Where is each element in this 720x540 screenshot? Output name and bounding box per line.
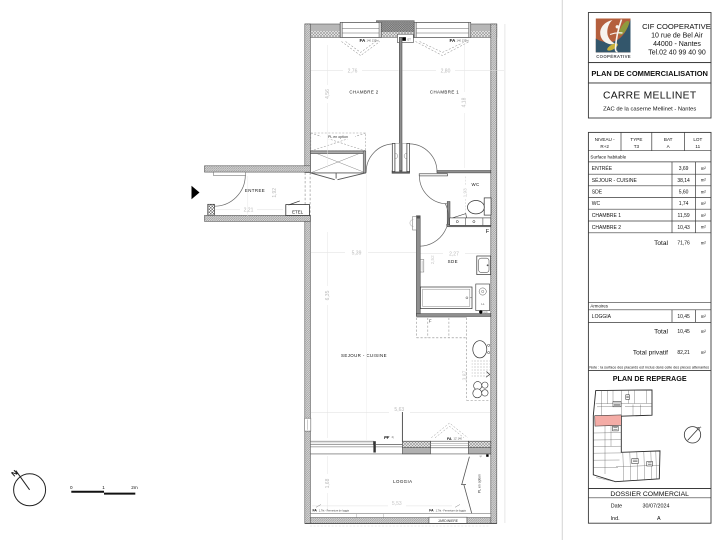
svg-text:2,27: 2,27	[449, 251, 459, 257]
svg-text:Date: Date	[611, 504, 622, 510]
svg-text:PLAN DE REPERAGE: PLAN DE REPERAGE	[613, 374, 687, 383]
svg-text:3,69: 3,69	[679, 166, 689, 172]
svg-text:m²: m²	[701, 201, 707, 206]
svg-text:12' 140: 12' 140	[454, 437, 463, 441]
svg-text:10,43: 10,43	[677, 225, 690, 231]
svg-text:10,45: 10,45	[677, 314, 690, 320]
svg-text:1,7ht - Fermeture de loggia: 1,7ht - Fermeture de loggia	[436, 510, 467, 513]
svg-text:ETEL: ETEL	[292, 210, 304, 215]
svg-text:FA: FA	[429, 509, 434, 513]
svg-text:m²: m²	[701, 166, 707, 171]
svg-text:A: A	[657, 516, 661, 522]
svg-text:FA: FA	[447, 437, 452, 441]
svg-text:FA: FA	[313, 509, 318, 513]
svg-text:5,53: 5,53	[392, 501, 402, 507]
svg-text:JARDINIERE: JARDINIERE	[438, 519, 459, 523]
svg-text:10 rue de Bel Air: 10 rue de Bel Air	[651, 33, 703, 40]
svg-text:BAT: BAT	[664, 137, 673, 142]
svg-text:0: 0	[70, 485, 73, 490]
svg-text:m²: m²	[701, 241, 707, 246]
svg-text:m²: m²	[701, 189, 707, 194]
svg-text:F: F	[486, 229, 490, 235]
svg-text:Total: Total	[654, 328, 668, 335]
svg-text:140 135ht: 140 135ht	[367, 39, 379, 43]
svg-text:30/07/2024: 30/07/2024	[643, 504, 670, 510]
svg-text:FA: FA	[360, 38, 367, 43]
svg-text:38,14: 38,14	[677, 178, 690, 184]
svg-text:2m: 2m	[131, 485, 138, 490]
svg-text:m²: m²	[701, 225, 707, 230]
svg-text:CHAMBRE 2: CHAMBRE 2	[592, 225, 621, 231]
svg-text:SEJOUR - CUISINE: SEJOUR - CUISINE	[341, 353, 387, 358]
svg-text:SDE: SDE	[592, 190, 603, 196]
svg-text:2,52: 2,52	[430, 255, 435, 264]
svg-text:LL: LL	[481, 302, 485, 306]
svg-text:F: F	[429, 319, 432, 324]
svg-text:Armoires: Armoires	[590, 304, 608, 309]
svg-text:LOGGIA: LOGGIA	[592, 314, 612, 320]
svg-text:1,68: 1,68	[325, 478, 331, 488]
svg-text:CHAMBRE 1: CHAMBRE 1	[592, 213, 621, 219]
svg-text:11,59: 11,59	[678, 213, 690, 219]
svg-text:m²: m²	[701, 350, 707, 355]
svg-text:WC: WC	[471, 182, 479, 187]
svg-text:COOPÉRATIVE: COOPÉRATIVE	[596, 54, 631, 59]
svg-text:1,7ht - Fermeture de loggia: 1,7ht - Fermeture de loggia	[319, 510, 350, 513]
svg-text:5,39: 5,39	[352, 250, 362, 256]
svg-text:m²: m²	[701, 213, 707, 218]
svg-text:m²: m²	[701, 178, 707, 183]
svg-text:1,92: 1,92	[272, 188, 278, 198]
svg-text:4,56: 4,56	[325, 89, 331, 99]
svg-text:SDE: SDE	[448, 259, 458, 264]
svg-text:NIVEAU -: NIVEAU -	[595, 137, 615, 142]
svg-text:ZAC de la caserne Mellinet - N: ZAC de la caserne Mellinet - Nantes	[603, 106, 696, 112]
svg-text:Surface habitable: Surface habitable	[590, 154, 626, 159]
svg-text:PF: PF	[384, 435, 390, 440]
svg-text:71,76: 71,76	[677, 241, 690, 247]
svg-text:T3: T3	[634, 144, 640, 149]
svg-text:140 135ht: 140 135ht	[457, 39, 469, 43]
svg-text:R+2: R+2	[600, 144, 609, 149]
svg-text:siph.: siph.	[483, 311, 488, 314]
svg-text:Note : la surface des placards: Note : la surface des placards est inclu…	[589, 365, 709, 369]
svg-text:44000 - Nantes: 44000 - Nantes	[653, 41, 701, 48]
svg-text:PL en option: PL en option	[477, 474, 481, 493]
svg-text:1: 1	[102, 485, 105, 490]
svg-text:1,93: 1,93	[463, 188, 468, 197]
svg-text:FA: FA	[450, 38, 457, 43]
svg-text:2,76: 2,76	[348, 68, 358, 74]
svg-text:PL en option: PL en option	[328, 135, 348, 139]
svg-text:DOSSIER COMMERCIAL: DOSSIER COMMERCIAL	[610, 491, 689, 498]
svg-text:WC: WC	[592, 201, 601, 207]
svg-text:CARRE MELLINET: CARRE MELLINET	[603, 91, 697, 102]
svg-text:2,80: 2,80	[441, 68, 451, 74]
svg-text:LOGGIA: LOGGIA	[393, 479, 412, 484]
svg-text:Total: Total	[654, 240, 668, 247]
svg-text:m²: m²	[701, 314, 707, 319]
svg-text:10,45: 10,45	[677, 329, 690, 335]
svg-text:m²: m²	[701, 329, 707, 334]
svg-text:CHAMBRE 2: CHAMBRE 2	[349, 90, 378, 95]
svg-text:TYPE: TYPE	[630, 137, 642, 142]
svg-text:11: 11	[695, 144, 700, 149]
svg-text:Ind.: Ind.	[611, 516, 620, 522]
svg-text:Total privatif: Total privatif	[633, 349, 668, 356]
svg-text:CIF COOPERATIVE: CIF COOPERATIVE	[642, 22, 711, 31]
svg-text:3,87: 3,87	[463, 370, 469, 380]
svg-text:4,18: 4,18	[462, 97, 468, 107]
svg-text:CHAMBRE 1: CHAMBRE 1	[430, 90, 459, 95]
svg-text:GT: GT	[407, 38, 411, 41]
svg-text:2,21: 2,21	[244, 208, 254, 214]
svg-text:SÉJOUR - CUISINE: SÉJOUR - CUISINE	[592, 177, 638, 184]
svg-text:1,74: 1,74	[679, 201, 689, 207]
svg-text:5,60: 5,60	[679, 190, 689, 196]
svg-text:LOT: LOT	[693, 137, 702, 142]
svg-text:PLAN DE COMMERCIALISATION: PLAN DE COMMERCIALISATION	[591, 69, 708, 78]
svg-text:82,21: 82,21	[677, 350, 690, 356]
svg-text:Tel.02 40 99 40 90: Tel.02 40 99 40 90	[648, 49, 706, 56]
svg-text:6,35: 6,35	[325, 290, 331, 300]
svg-text:ENTRÉE: ENTRÉE	[592, 165, 613, 172]
svg-text:5,63: 5,63	[394, 407, 404, 413]
